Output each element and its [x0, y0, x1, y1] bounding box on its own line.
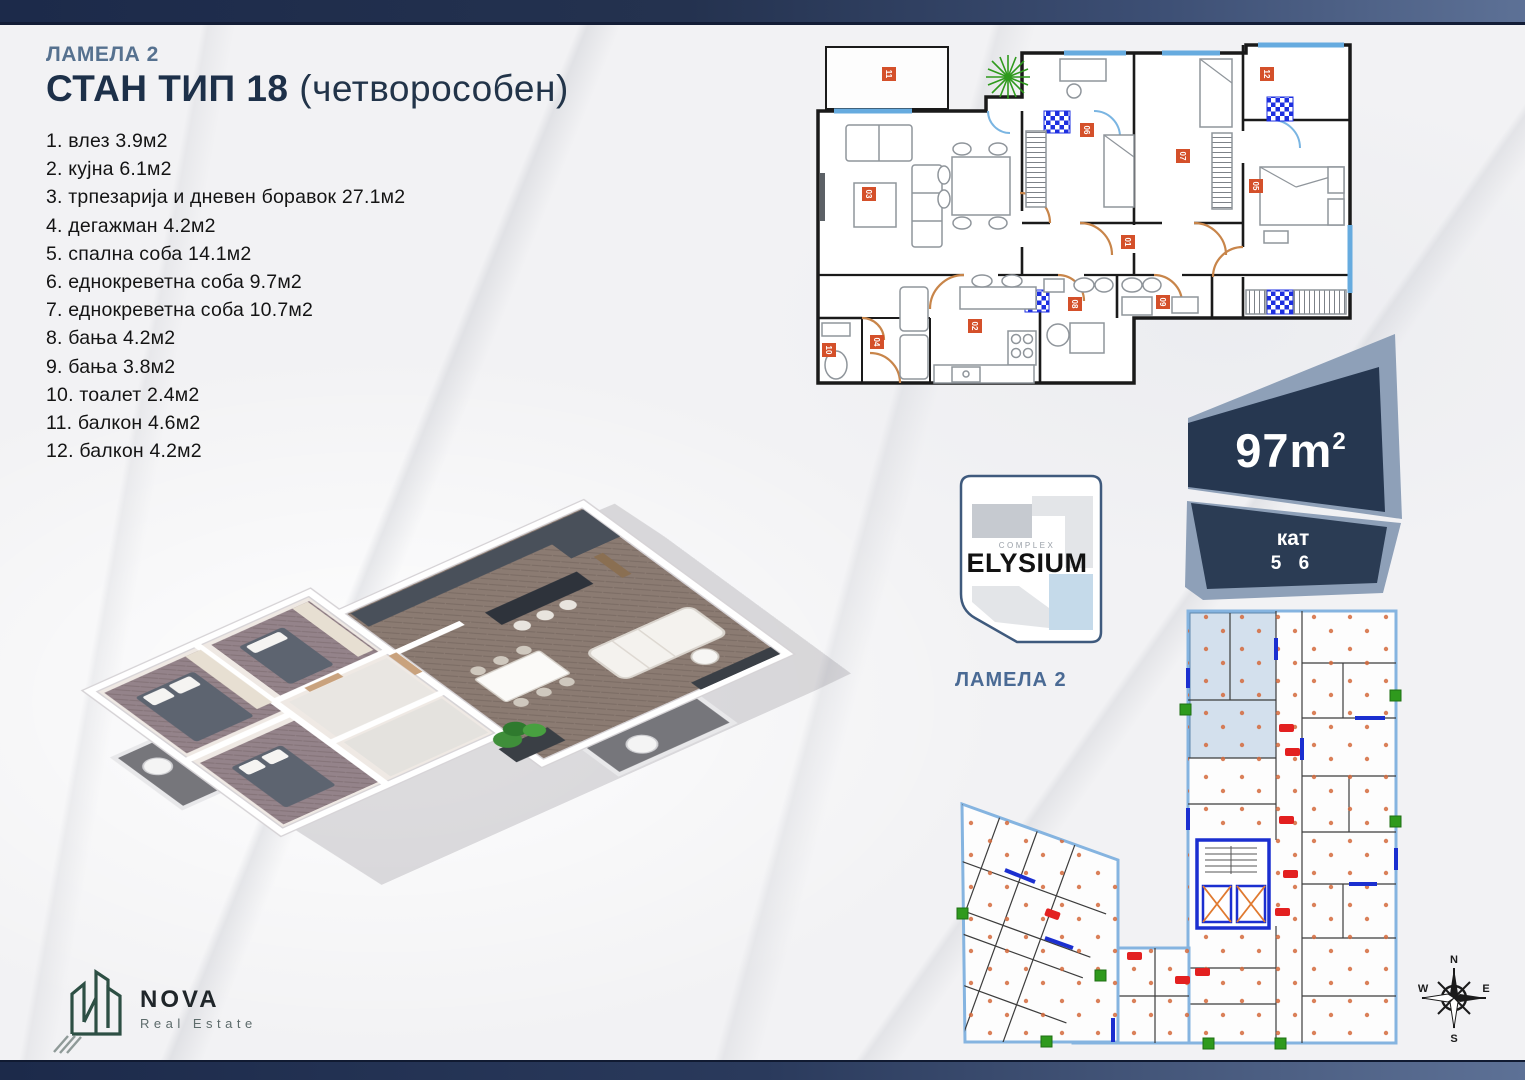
list-item: 8. бања 4.2м2 [46, 327, 405, 350]
list-item: 11. балкон 4.6м2 [46, 412, 405, 435]
apartment-subtitle: (четворособен) [299, 68, 568, 109]
svg-text:06: 06 [1082, 126, 1091, 135]
room-marker: 07 [1176, 149, 1190, 163]
compass-e: E [1482, 983, 1489, 995]
lamela-label: ЛАМЕЛА 2 [46, 44, 569, 66]
vertical-wing [1188, 611, 1396, 1043]
room-marker: 05 [1249, 179, 1263, 193]
svg-text:03: 03 [864, 190, 873, 199]
nova-logo-block: NOVA Real Estate [48, 958, 278, 1058]
svg-text:02: 02 [970, 322, 979, 331]
area-badge: 97m2 кат 5 6 [1183, 315, 1405, 607]
apartment-type-title: СТАН ТИП 18 [46, 68, 289, 109]
iso-furniture [120, 490, 781, 850]
room-marker: 02 [968, 319, 982, 333]
list-item: 2. кујна 6.1м2 [46, 158, 405, 181]
list-item: 5. спална соба 14.1м2 [46, 243, 405, 266]
svg-text:07: 07 [1178, 152, 1187, 161]
svg-text:10: 10 [824, 346, 833, 355]
floor-label: кат [1213, 527, 1373, 551]
room-area-list: 1. влез 3.9м2 2. кујна 6.1м2 3. трпезари… [46, 130, 405, 468]
room-marker: 10 [822, 343, 836, 357]
building-floor-overview [945, 608, 1407, 1052]
top-accent-bar [0, 0, 1525, 25]
area-value: 97m [1235, 424, 1332, 477]
compass-s: S [1450, 1033, 1457, 1044]
list-item: 10. тоалет 2.4м2 [46, 384, 405, 407]
svg-text:09: 09 [1158, 298, 1167, 307]
compass-w: W [1418, 983, 1429, 995]
list-item: 12. балкон 4.2м2 [46, 440, 405, 463]
list-item: 7. еднокреветна соба 10.7м2 [46, 299, 405, 322]
brochure-page: ЛАМЕЛА 2 СТАН ТИП 18 (четворособен) 1. в… [0, 0, 1525, 1080]
svg-text:04: 04 [872, 338, 881, 347]
room-marker: 11 [882, 67, 896, 81]
list-item: 4. дегажман 4.2м2 [46, 215, 405, 238]
room-marker: 08 [1068, 297, 1082, 311]
svg-text:12: 12 [1262, 70, 1271, 79]
svg-text:05: 05 [1251, 182, 1260, 191]
iso-walls [89, 483, 787, 862]
room-marker: 12 [1260, 67, 1274, 81]
page-title: СТАН ТИП 18 (четворособен) [46, 70, 569, 109]
compass-n: N [1450, 954, 1458, 966]
iso-balconies [114, 572, 734, 908]
iso-floors [89, 483, 787, 862]
room-marker: 03 [862, 187, 876, 201]
list-item: 3. трпезарија и дневен боравок 27.1м2 [46, 186, 405, 209]
room-marker: 06 [1080, 123, 1094, 137]
header-block: ЛАМЕЛА 2 СТАН ТИП 18 (четворособен) [46, 44, 569, 109]
list-item: 1. влез 3.9м2 [46, 130, 405, 153]
list-item: 9. бања 3.8м2 [46, 356, 405, 379]
svg-text:11: 11 [884, 70, 893, 79]
svg-text:01: 01 [1123, 238, 1132, 247]
compass-rose: N S W E [1418, 952, 1490, 1044]
room-marker: 01 [1121, 235, 1135, 249]
floor-info: кат 5 6 [1213, 527, 1373, 575]
nova-tagline: Real Estate [140, 1016, 257, 1031]
bottom-accent-bar [0, 1060, 1525, 1080]
plant-icon [986, 55, 1030, 99]
elysium-name: ELYSIUM [966, 548, 1087, 578]
apartment-area: 97m2 [1201, 423, 1381, 478]
diagonal-wing [945, 798, 1125, 1052]
room-marker: 04 [870, 335, 884, 349]
nova-buildings-icon [48, 958, 136, 1054]
floor-numbers: 5 6 [1213, 553, 1373, 575]
nova-name: NOVA [140, 986, 257, 1014]
area-exponent: 2 [1332, 428, 1346, 455]
room-marker: 09 [1156, 295, 1170, 309]
stair-elevator-core [1197, 840, 1269, 928]
svg-text:08: 08 [1070, 300, 1079, 309]
list-item: 6. еднокреветна соба 9.7м2 [46, 271, 405, 294]
